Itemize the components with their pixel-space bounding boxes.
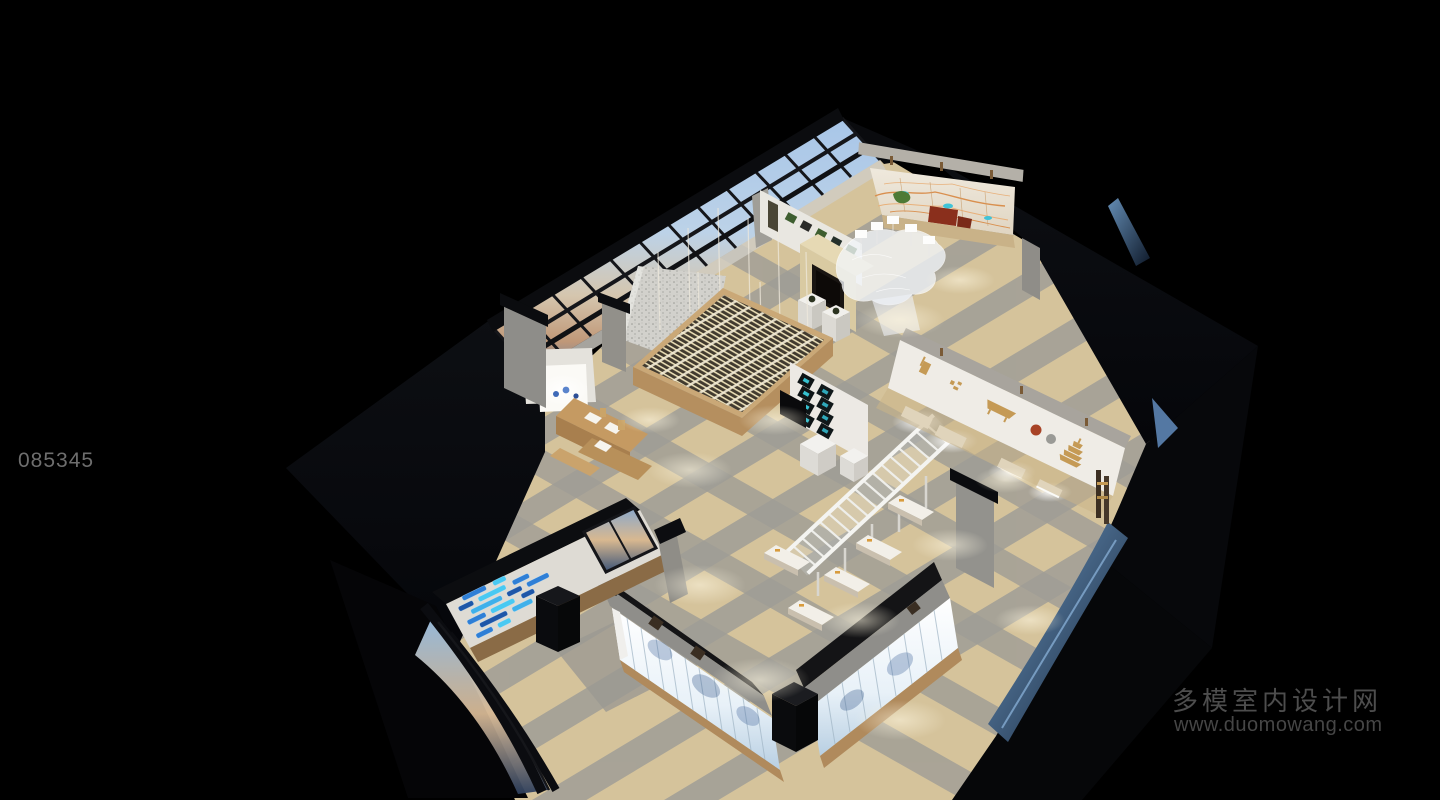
map-room-corner-pier (1022, 238, 1040, 300)
watermark-site-name: 多模室内设计网 (1172, 681, 1382, 718)
render-viewport: 085345 多模室内设计网 www.duomowang.com (0, 0, 1440, 800)
watermark-site-url: www.duomowang.com (1174, 714, 1383, 737)
info-banner (768, 200, 778, 232)
render-id-label: 085345 (18, 449, 94, 473)
exhibition-hall-render (0, 0, 1440, 800)
front-pillar (536, 586, 580, 652)
